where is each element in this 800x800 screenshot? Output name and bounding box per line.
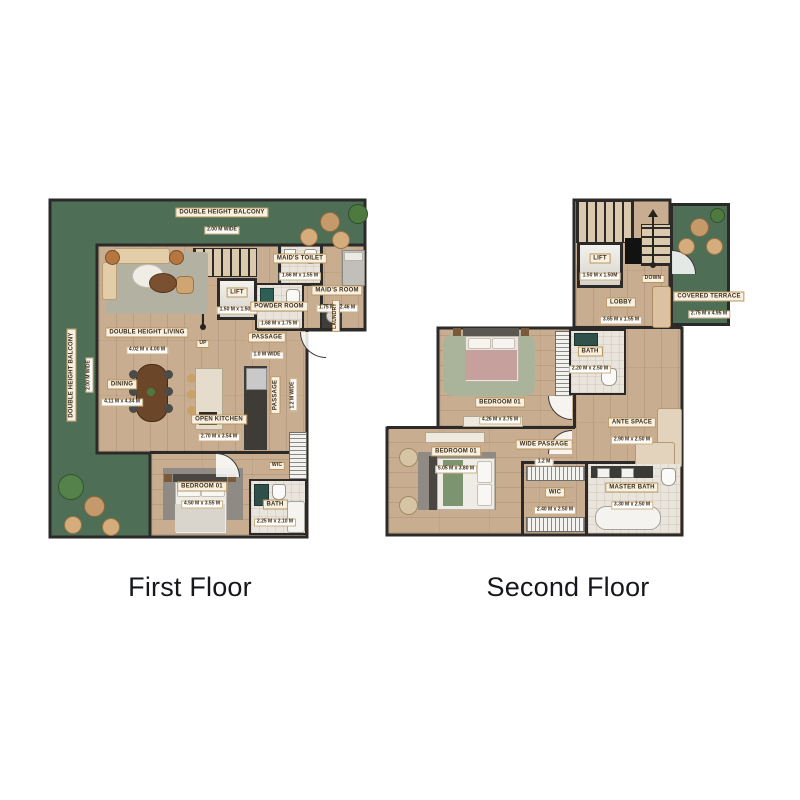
label-dining-name: DINING	[107, 380, 137, 390]
label-maids-toilet-name: MAID'S TOILET	[273, 254, 327, 264]
label-double-height-living-dimensions: 4.02 M x 4.00 M	[126, 346, 168, 354]
label-double-height-balcony-left-dimensions: 2.00 M WIDE	[85, 357, 93, 393]
label-ante-space: ANTE SPACE2.90 M x 2.50 M	[608, 412, 656, 445]
label-wic-1f-name: WIC	[269, 462, 285, 470]
first-floor-title: First Floor	[90, 572, 290, 604]
label-lift-2f-name: LIFT	[589, 254, 610, 264]
label-master-bath-dimensions: 3.30 M x 2.50 M	[611, 501, 653, 509]
label-covered-terrace-dimensions: 2.75 M x 4.95 M	[688, 310, 730, 318]
label-powder-room-name: POWDER ROOM	[250, 302, 308, 312]
label-passage-vertical-name: PASSAGE	[271, 376, 281, 414]
label-down: DOWN	[642, 267, 665, 283]
label-master-bath-name: MASTER BATH	[605, 483, 658, 493]
label-ante-space-name: ANTE SPACE	[608, 418, 656, 428]
label-bedroom-01-2f-top-name: BEDROOM 01	[475, 398, 525, 408]
label-bath-1f: BATH2.25 M x 2.10 M	[254, 494, 296, 527]
label-bath-2f-name: BATH	[577, 347, 602, 357]
label-bath-1f-name: BATH	[262, 500, 287, 510]
label-up: UP	[196, 332, 209, 348]
label-dining: DINING4.11 M x 4.34 M	[101, 374, 143, 407]
label-bedroom-01-1f-dimensions: 4.50 M x 3.55 M	[181, 500, 223, 508]
second-floor-plan: LIFT1.50 M x 1.50MDOWNLOBBY3.65 M x 1.55…	[385, 198, 745, 540]
label-down-name: DOWN	[642, 275, 665, 283]
label-open-kitchen-dimensions: 2.70 M x 3.54 M	[198, 433, 240, 441]
label-wide-passage-name: WIDE PASSAGE	[516, 440, 573, 450]
label-powder-room: POWDER ROOM1.68 M x 1.75 M	[250, 296, 308, 329]
label-bedroom-01-1f-name: BEDROOM 01	[177, 482, 227, 492]
label-lobby: LOBBY3.65 M x 1.55 M	[600, 292, 642, 325]
label-maids-room-name: MAID'S ROOM	[311, 286, 362, 296]
label-bedroom-01-2f-lower-dimensions: 5.05 M x 3.80 M	[435, 465, 477, 473]
label-bath-2f-dimensions: 2.20 M x 2.50 M	[569, 365, 611, 373]
label-laundry: LAUNDRY	[324, 300, 340, 332]
label-master-bath: MASTER BATH3.30 M x 2.50 M	[605, 477, 658, 510]
label-wic-2f: WIC2.40 M x 2.50 M	[534, 482, 576, 515]
label-bedroom-01-2f-lower: BEDROOM 015.05 M x 3.80 M	[431, 441, 481, 474]
first-floor-plan: DOUBLE HEIGHT BALCONY2.00 M WIDEDOUBLE H…	[48, 198, 368, 540]
label-bath-1f-dimensions: 2.25 M x 2.10 M	[254, 518, 296, 526]
label-lift-2f-dimensions: 1.50 M x 1.50M	[580, 272, 621, 280]
label-wic-1f: WIC	[269, 454, 285, 470]
label-double-height-balcony-top: DOUBLE HEIGHT BALCONY2.00 M WIDE	[175, 202, 268, 235]
label-bedroom-01-1f: BEDROOM 014.50 M x 3.55 M	[177, 476, 227, 509]
label-double-height-balcony-top-name: DOUBLE HEIGHT BALCONY	[175, 208, 268, 218]
label-double-height-balcony-top-dimensions: 2.00 M WIDE	[204, 226, 240, 234]
label-open-kitchen: OPEN KITCHEN2.70 M x 3.54 M	[191, 409, 247, 442]
label-wic-2f-name: WIC	[545, 488, 565, 498]
label-passage-1f-dimensions: 1.0 M WIDE	[251, 351, 284, 359]
label-up-name: UP	[196, 340, 209, 348]
label-laundry-name: LAUNDRY	[332, 300, 340, 332]
label-ante-space-dimensions: 2.90 M x 2.50 M	[611, 436, 653, 444]
label-passage-1f-name: PASSAGE	[248, 333, 286, 343]
label-dining-dimensions: 4.11 M x 4.34 M	[101, 398, 143, 406]
label-lobby-dimensions: 3.65 M x 1.55 M	[600, 316, 642, 324]
label-passage-vertical-dimensions: 1.2 M WIDE	[289, 379, 297, 412]
label-bath-2f: BATH2.20 M x 2.50 M	[569, 341, 611, 374]
label-wide-passage-dimensions: 1.2 M	[535, 458, 554, 466]
label-double-height-balcony-left: DOUBLE HEIGHT BALCONY2.00 M WIDE	[61, 328, 94, 421]
label-bedroom-01-2f-lower-name: BEDROOM 01	[431, 447, 481, 457]
label-open-kitchen-name: OPEN KITCHEN	[191, 415, 247, 425]
label-maids-toilet: MAID'S TOILET1.66 M x 1.55 M	[273, 248, 327, 281]
floor-plan-page: { "colors": { "wall": "#2b2a28", "balcon…	[0, 0, 800, 800]
label-covered-terrace-name: COVERED TERRACE	[673, 292, 744, 302]
second-floor-title: Second Floor	[468, 572, 668, 604]
label-lift-2f: LIFT1.50 M x 1.50M	[580, 248, 621, 281]
label-double-height-living: DOUBLE HEIGHT LIVING4.02 M x 4.00 M	[105, 322, 188, 355]
label-lift-1f-name: LIFT	[226, 288, 247, 298]
label-wic-2f-dimensions: 2.40 M x 2.50 M	[534, 506, 576, 514]
label-covered-terrace: COVERED TERRACE2.75 M x 4.95 M	[673, 286, 744, 319]
label-lobby-name: LOBBY	[606, 298, 636, 308]
label-double-height-living-name: DOUBLE HEIGHT LIVING	[105, 328, 188, 338]
label-bedroom-01-2f-top: BEDROOM 014.26 M x 3.75 M	[475, 392, 525, 425]
label-bedroom-01-2f-top-dimensions: 4.26 M x 3.75 M	[479, 416, 521, 424]
label-double-height-balcony-left-name: DOUBLE HEIGHT BALCONY	[67, 328, 77, 421]
label-passage-1f: PASSAGE1.0 M WIDE	[248, 327, 286, 360]
label-passage-vertical: PASSAGE1.2 M WIDE	[265, 376, 298, 414]
label-wide-passage: WIDE PASSAGE1.2 M	[516, 434, 573, 467]
